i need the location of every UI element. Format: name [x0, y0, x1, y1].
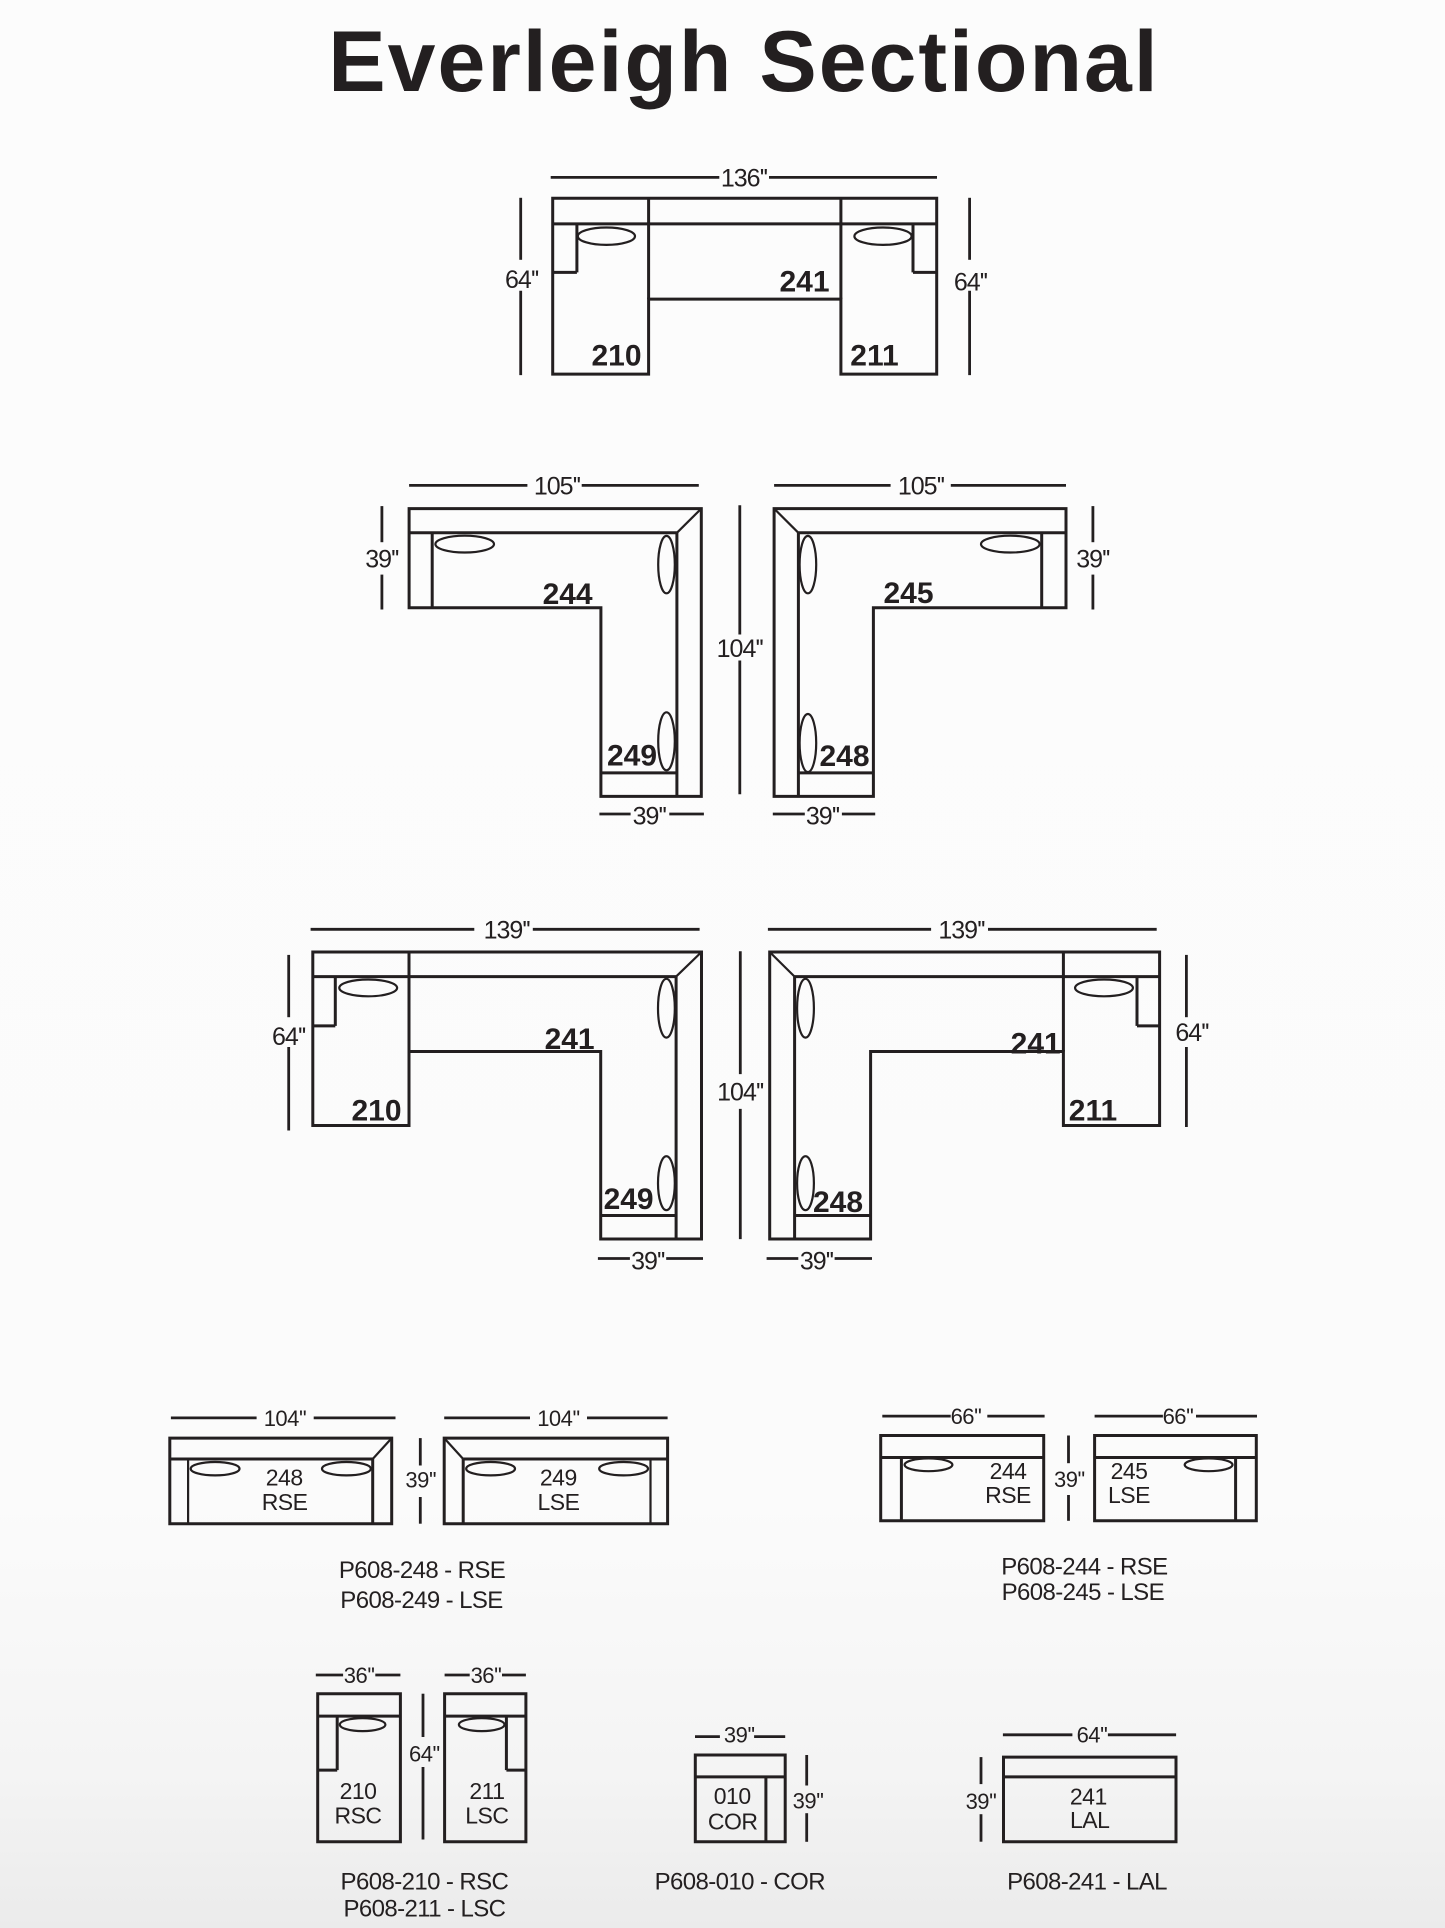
svg-text:P608-010 - COR: P608-010 - COR: [655, 1868, 826, 1895]
svg-text:105'': 105'': [898, 473, 944, 501]
svg-text:249: 249: [540, 1465, 577, 1491]
svg-text:36'': 36'': [344, 1663, 375, 1688]
svg-text:249: 249: [607, 740, 657, 773]
svg-text:244: 244: [543, 578, 593, 611]
svg-text:RSE: RSE: [262, 1489, 308, 1515]
svg-text:211: 211: [1069, 1095, 1117, 1128]
svg-text:LSC: LSC: [465, 1803, 508, 1829]
svg-text:210: 210: [340, 1778, 377, 1804]
svg-text:39'': 39'': [365, 546, 399, 574]
svg-text:104'': 104'': [717, 635, 763, 663]
svg-text:39'': 39'': [800, 1248, 834, 1276]
svg-text:245: 245: [883, 577, 933, 610]
svg-text:139'': 139'': [938, 917, 984, 945]
svg-text:39'': 39'': [724, 1723, 755, 1748]
svg-text:64'': 64'': [954, 269, 988, 297]
svg-text:248: 248: [819, 740, 869, 773]
svg-text:66'': 66'': [1163, 1404, 1194, 1429]
svg-text:241: 241: [779, 266, 829, 299]
svg-text:P608-244 - RSE: P608-244 - RSE: [1001, 1554, 1167, 1581]
svg-text:64'': 64'': [409, 1742, 440, 1767]
svg-text:105'': 105'': [534, 473, 580, 501]
svg-text:64'': 64'': [505, 266, 539, 294]
svg-text:104'': 104'': [537, 1406, 580, 1431]
svg-text:248: 248: [266, 1465, 303, 1491]
svg-text:39'': 39'': [631, 1248, 665, 1276]
svg-text:COR: COR: [708, 1809, 758, 1835]
svg-text:P608-245 - LSE: P608-245 - LSE: [1002, 1579, 1164, 1606]
svg-text:241: 241: [1011, 1027, 1061, 1060]
svg-text:39'': 39'': [633, 802, 667, 830]
svg-text:211: 211: [850, 340, 898, 373]
svg-text:248: 248: [813, 1186, 863, 1219]
svg-text:39'': 39'': [806, 802, 840, 830]
svg-text:P608-249 - LSE: P608-249 - LSE: [340, 1587, 502, 1614]
svg-text:104'': 104'': [264, 1406, 307, 1431]
svg-text:64'': 64'': [1175, 1019, 1209, 1047]
svg-text:104'': 104'': [717, 1079, 763, 1107]
svg-text:66'': 66'': [951, 1404, 982, 1429]
svg-text:LSE: LSE: [538, 1489, 580, 1515]
svg-text:RSC: RSC: [334, 1803, 381, 1829]
svg-text:LSE: LSE: [1108, 1482, 1150, 1508]
svg-text:39'': 39'': [1076, 546, 1110, 574]
svg-text:211: 211: [469, 1778, 504, 1804]
svg-text:64'': 64'': [1077, 1723, 1108, 1748]
svg-text:39'': 39'': [1054, 1467, 1085, 1492]
svg-text:Everleigh Sectional: Everleigh Sectional: [328, 14, 1159, 110]
svg-text:241: 241: [545, 1023, 595, 1056]
svg-text:249: 249: [604, 1183, 654, 1216]
svg-text:P608-248 - RSE: P608-248 - RSE: [339, 1557, 505, 1584]
svg-text:P608-211 - LSC: P608-211 - LSC: [343, 1895, 505, 1922]
svg-text:245: 245: [1111, 1458, 1148, 1484]
svg-text:P608-241 - LAL: P608-241 - LAL: [1007, 1869, 1167, 1896]
svg-text:39'': 39'': [405, 1468, 436, 1493]
svg-text:39'': 39'': [966, 1789, 997, 1814]
svg-text:244: 244: [990, 1458, 1028, 1484]
svg-text:010: 010: [714, 1783, 751, 1809]
svg-text:136'': 136'': [721, 165, 767, 193]
svg-text:64'': 64'': [272, 1023, 306, 1051]
svg-text:P608-210 - RSC: P608-210 - RSC: [341, 1869, 509, 1896]
svg-text:210: 210: [351, 1095, 401, 1128]
svg-text:LAL: LAL: [1070, 1807, 1110, 1833]
svg-text:36'': 36'': [471, 1663, 502, 1688]
svg-text:210: 210: [591, 340, 641, 373]
svg-text:241: 241: [1070, 1783, 1107, 1809]
svg-text:139'': 139'': [484, 917, 530, 945]
svg-text:39'': 39'': [793, 1789, 824, 1814]
svg-text:RSE: RSE: [985, 1482, 1031, 1508]
